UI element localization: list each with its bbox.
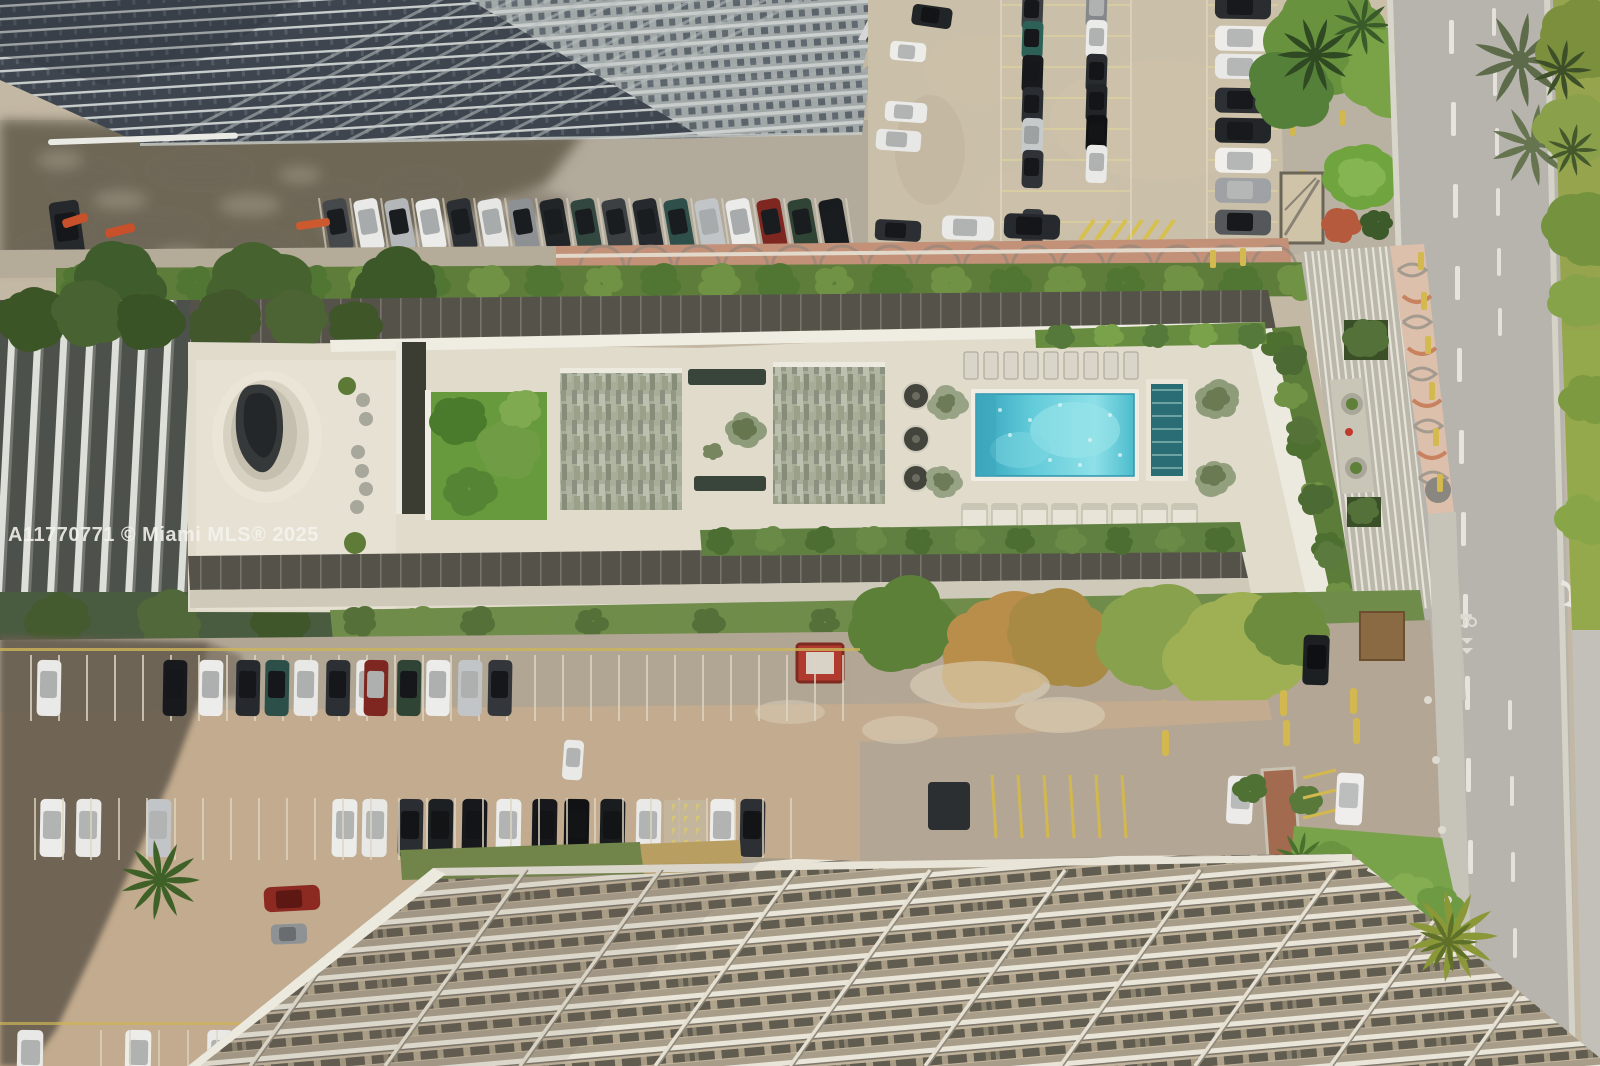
svg-text:A11770771 © Miami MLS® 2025: A11770771 © Miami MLS® 2025 <box>8 524 319 546</box>
